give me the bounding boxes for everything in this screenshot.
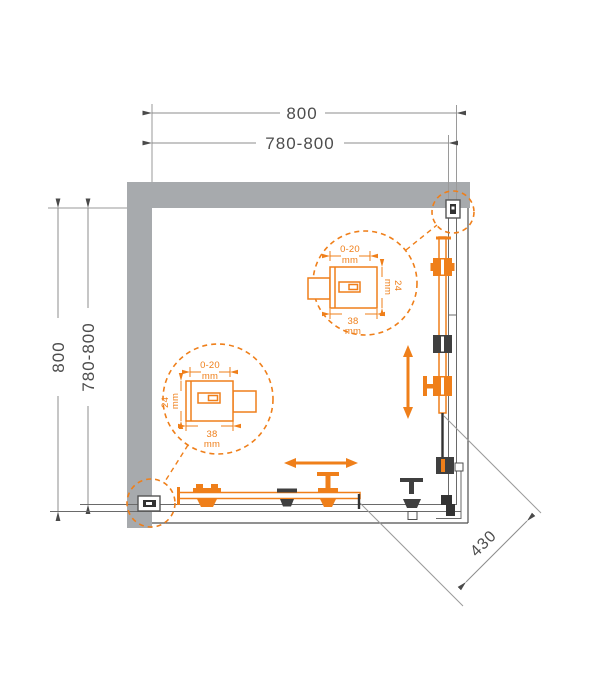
corner-block — [441, 495, 452, 505]
detail-leader-lower — [164, 445, 188, 483]
wall-bracket-left — [138, 496, 160, 511]
walls — [127, 182, 470, 528]
wall-bracket-top — [446, 200, 460, 218]
roller-right-mid — [433, 335, 452, 353]
dim-diagonal-label: 430 — [467, 527, 500, 560]
detail-lower-range-dim: 0-20 mm — [190, 360, 230, 382]
detail-lower-height-dim: 24 mm — [160, 381, 181, 421]
handle-cap — [400, 478, 423, 482]
svg-text:0-20: 0-20 — [340, 244, 360, 255]
top-wall — [127, 182, 470, 208]
right-door-handle — [423, 376, 452, 396]
corner-handle — [400, 478, 423, 508]
detail-upper-range-dim: 0-20 mm — [330, 244, 370, 266]
enclosure-frame — [50, 200, 468, 523]
detail-leader-upper — [406, 225, 437, 250]
sliding-door-bottom — [178, 458, 360, 509]
bottom-door-handle — [317, 472, 339, 507]
svg-text:24 mm: 24 mm — [160, 393, 181, 409]
slide-direction-arrow-horizontal — [284, 458, 358, 468]
bottom-door-profile — [178, 493, 360, 499]
rail-foot — [408, 512, 417, 520]
svg-text:mm: mm — [204, 439, 220, 450]
sliding-door-right — [403, 237, 455, 458]
svg-text:0-20: 0-20 — [200, 360, 220, 371]
dim-top-inner-label: 780-800 — [265, 134, 334, 153]
left-wall — [127, 182, 152, 528]
svg-text:24 mm: 24 mm — [382, 279, 403, 295]
dim-left-inner-label: 780-800 — [79, 322, 98, 391]
dim-left-outer-label: 800 — [49, 341, 68, 372]
svg-text:mm: mm — [342, 255, 358, 266]
corner-assembly — [400, 457, 463, 520]
profile-tab — [233, 391, 256, 412]
profile-body — [330, 267, 377, 308]
roller-right-top — [431, 258, 455, 276]
drawing-canvas: 800 780-800 800 780-800 430 — [0, 0, 600, 700]
slide-direction-arrow-vertical — [403, 345, 413, 419]
detail-upper-height-dim: 24 mm — [382, 267, 403, 308]
detail-upper-width-dim: 38 mm — [330, 309, 377, 337]
wall-tab — [455, 463, 463, 471]
svg-text:mm: mm — [345, 326, 361, 337]
handle-cap — [317, 472, 339, 476]
detail-lower-width-dim: 38 mm — [186, 421, 233, 450]
shower-enclosure-technical-drawing: 800 780-800 800 780-800 430 — [0, 0, 600, 700]
profile-tab — [308, 278, 330, 299]
dimension-left-inner: 780-800 — [79, 208, 98, 505]
dim-top-outer-label: 800 — [286, 104, 317, 123]
svg-text:mm: mm — [202, 371, 218, 382]
